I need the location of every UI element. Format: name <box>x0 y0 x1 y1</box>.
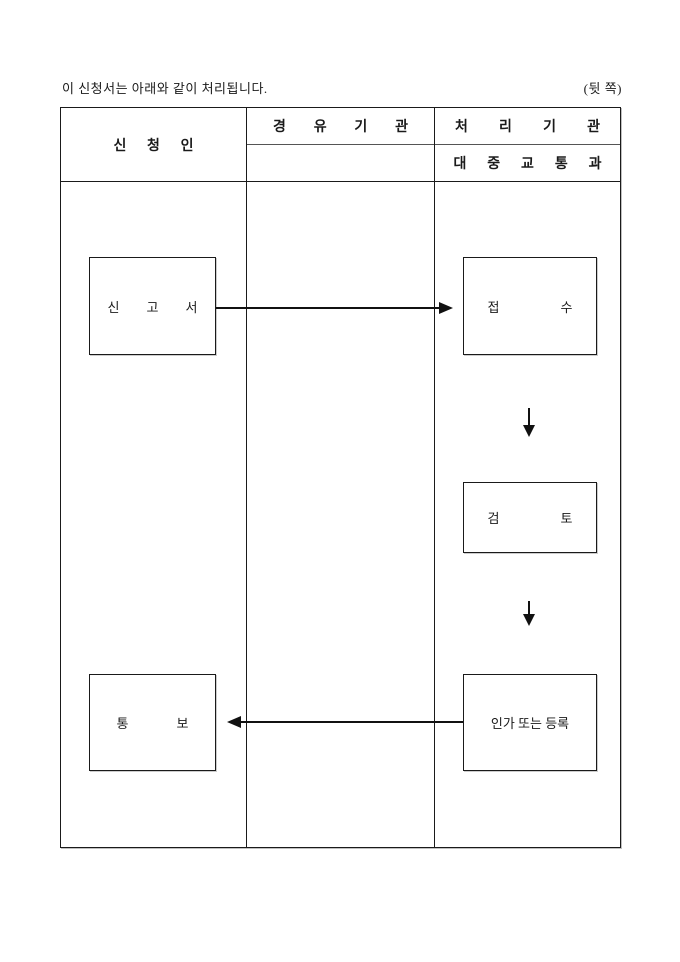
via-agency-column-header-cell: 경 유 기 관 <box>247 108 435 181</box>
processing-agency-header-label: 처 리 기 관 <box>455 116 600 136</box>
notice-box-label: 통 보 <box>117 713 189 732</box>
report-box: 신 고 서 <box>89 257 216 355</box>
receipt-box: 접 수 <box>463 257 597 355</box>
title-row: 이 신청서는 아래와 같이 처리됩니다. (뒷 쪽) <box>62 81 622 97</box>
applicant-column-header-cell: 신 청 인 <box>61 108 247 181</box>
column-divider-1 <box>246 182 247 848</box>
review-box-label: 검 토 <box>488 508 573 527</box>
transit-division-subheader-label: 대 중 교 통 과 <box>454 153 602 173</box>
arrow-left-head-icon <box>227 716 241 728</box>
column-divider-2 <box>434 182 435 848</box>
arrow-right-head-icon <box>439 302 453 314</box>
back-side-label: (뒷 쪽) <box>584 81 622 97</box>
arrow-down-head-icon <box>523 614 535 626</box>
form-back-page: 이 신청서는 아래와 같이 처리됩니다. (뒷 쪽) 신 청 인 경 유 기 관… <box>0 0 680 962</box>
report-box-label: 신 고 서 <box>108 297 198 316</box>
arrow-down-head-icon <box>523 425 535 437</box>
arrow-report-to-receipt-line <box>216 307 440 309</box>
via-agency-header-row: 경 유 기 관 <box>247 108 434 145</box>
via-agency-header-label: 경 유 기 관 <box>273 116 408 136</box>
via-agency-subheader-row <box>247 145 434 181</box>
arrow-review-to-approval-line <box>528 601 530 615</box>
applicant-header-label: 신 청 인 <box>114 135 194 155</box>
arrow-approval-to-notice-line <box>241 721 463 723</box>
processing-note: 이 신청서는 아래와 같이 처리됩니다. <box>62 81 268 97</box>
table-header: 신 청 인 경 유 기 관 처 리 기 관 대 중 교 통 과 <box>61 108 620 182</box>
processing-agency-header-row: 처 리 기 관 <box>435 108 620 145</box>
transit-division-subheader-row: 대 중 교 통 과 <box>435 145 620 181</box>
flow-diagram-area: 신 고 서 접 수 검 토 통 보 인가 또는 등록 <box>61 182 620 848</box>
notice-box: 통 보 <box>89 674 216 771</box>
processing-flow-table: 신 청 인 경 유 기 관 처 리 기 관 대 중 교 통 과 <box>60 107 621 848</box>
receipt-box-label: 접 수 <box>488 297 573 316</box>
review-box: 검 토 <box>463 482 597 553</box>
approval-box: 인가 또는 등록 <box>463 674 597 771</box>
arrow-receipt-to-review-line <box>528 408 530 426</box>
processing-agency-column-header-cell: 처 리 기 관 대 중 교 통 과 <box>435 108 620 181</box>
approval-box-label: 인가 또는 등록 <box>491 713 569 732</box>
